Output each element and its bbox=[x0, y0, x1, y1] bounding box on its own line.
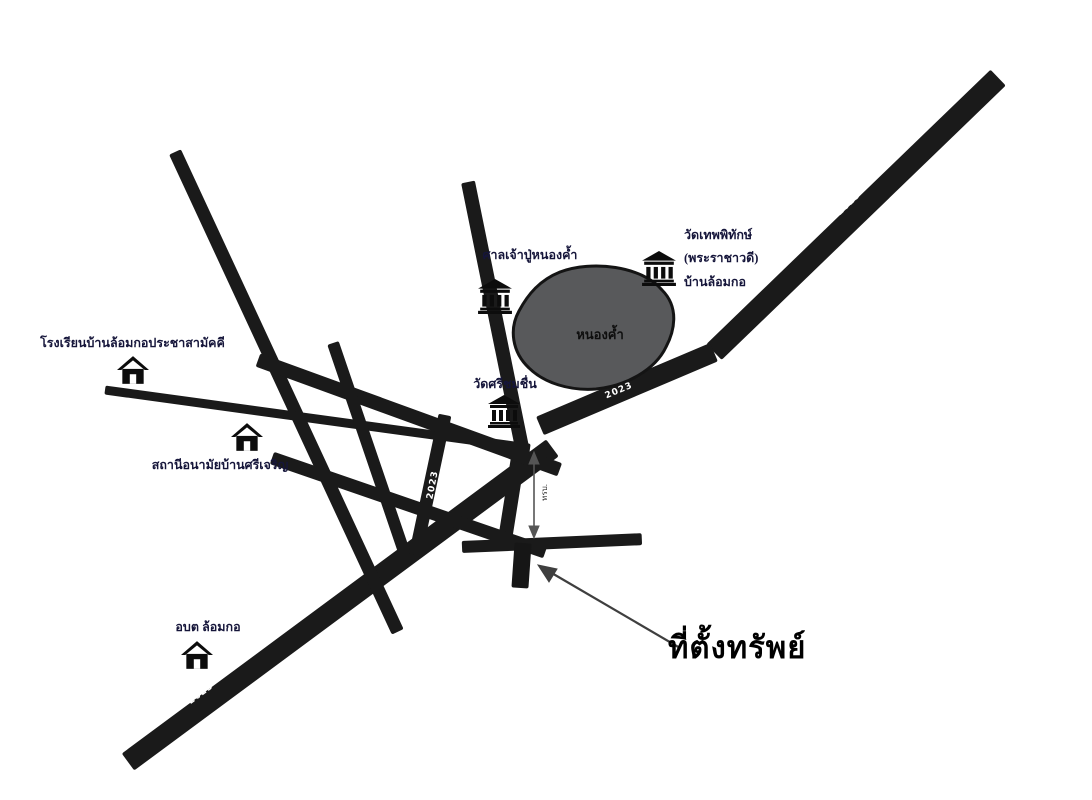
culvert-label: ทรบ. bbox=[538, 484, 551, 501]
road-number-label: 2023 bbox=[310, 553, 339, 578]
place-label-wat-si: วัดศรีชมชื่น bbox=[440, 377, 570, 391]
temple-icon bbox=[487, 394, 521, 428]
place-label-line: บ้านล้อมกอ bbox=[684, 275, 758, 289]
temple-icon bbox=[641, 250, 677, 286]
place-label-school: โรงเรียนบ้านล้อมกอประชาสามัคคี bbox=[30, 336, 235, 350]
place-label-shrine: ศาลเจ้าปู่หนองค้ำ bbox=[440, 248, 620, 262]
road-segment bbox=[122, 439, 559, 770]
property-location-label: ที่ตั้งทรัพย์ bbox=[668, 622, 806, 672]
property-marker bbox=[511, 542, 531, 588]
place-label-line: วัดเทพพิทักษ์ bbox=[684, 228, 758, 242]
house-icon bbox=[117, 356, 149, 385]
pond-label: หนองค้ำ bbox=[545, 324, 655, 345]
road-segment bbox=[706, 70, 1005, 360]
place-label-line: (พระราชาวดี) bbox=[684, 251, 758, 265]
sketch-map: 2023 2023 2023 2023 2023 ศาลเจ้าปู่หนองค… bbox=[0, 0, 1092, 800]
property-arrow bbox=[538, 565, 680, 648]
house-icon bbox=[181, 641, 213, 670]
place-label-health-station: สถานีอนามัยบ้านศรีเจริญ bbox=[135, 458, 305, 472]
place-label-wat-thep: วัดเทพพิทักษ์ (พระราชาวดี) บ้านล้อมกอ bbox=[684, 228, 758, 298]
house-icon bbox=[231, 423, 263, 452]
place-label-sao: อบต ล้อมกอ bbox=[148, 620, 268, 634]
temple-icon bbox=[477, 278, 513, 314]
